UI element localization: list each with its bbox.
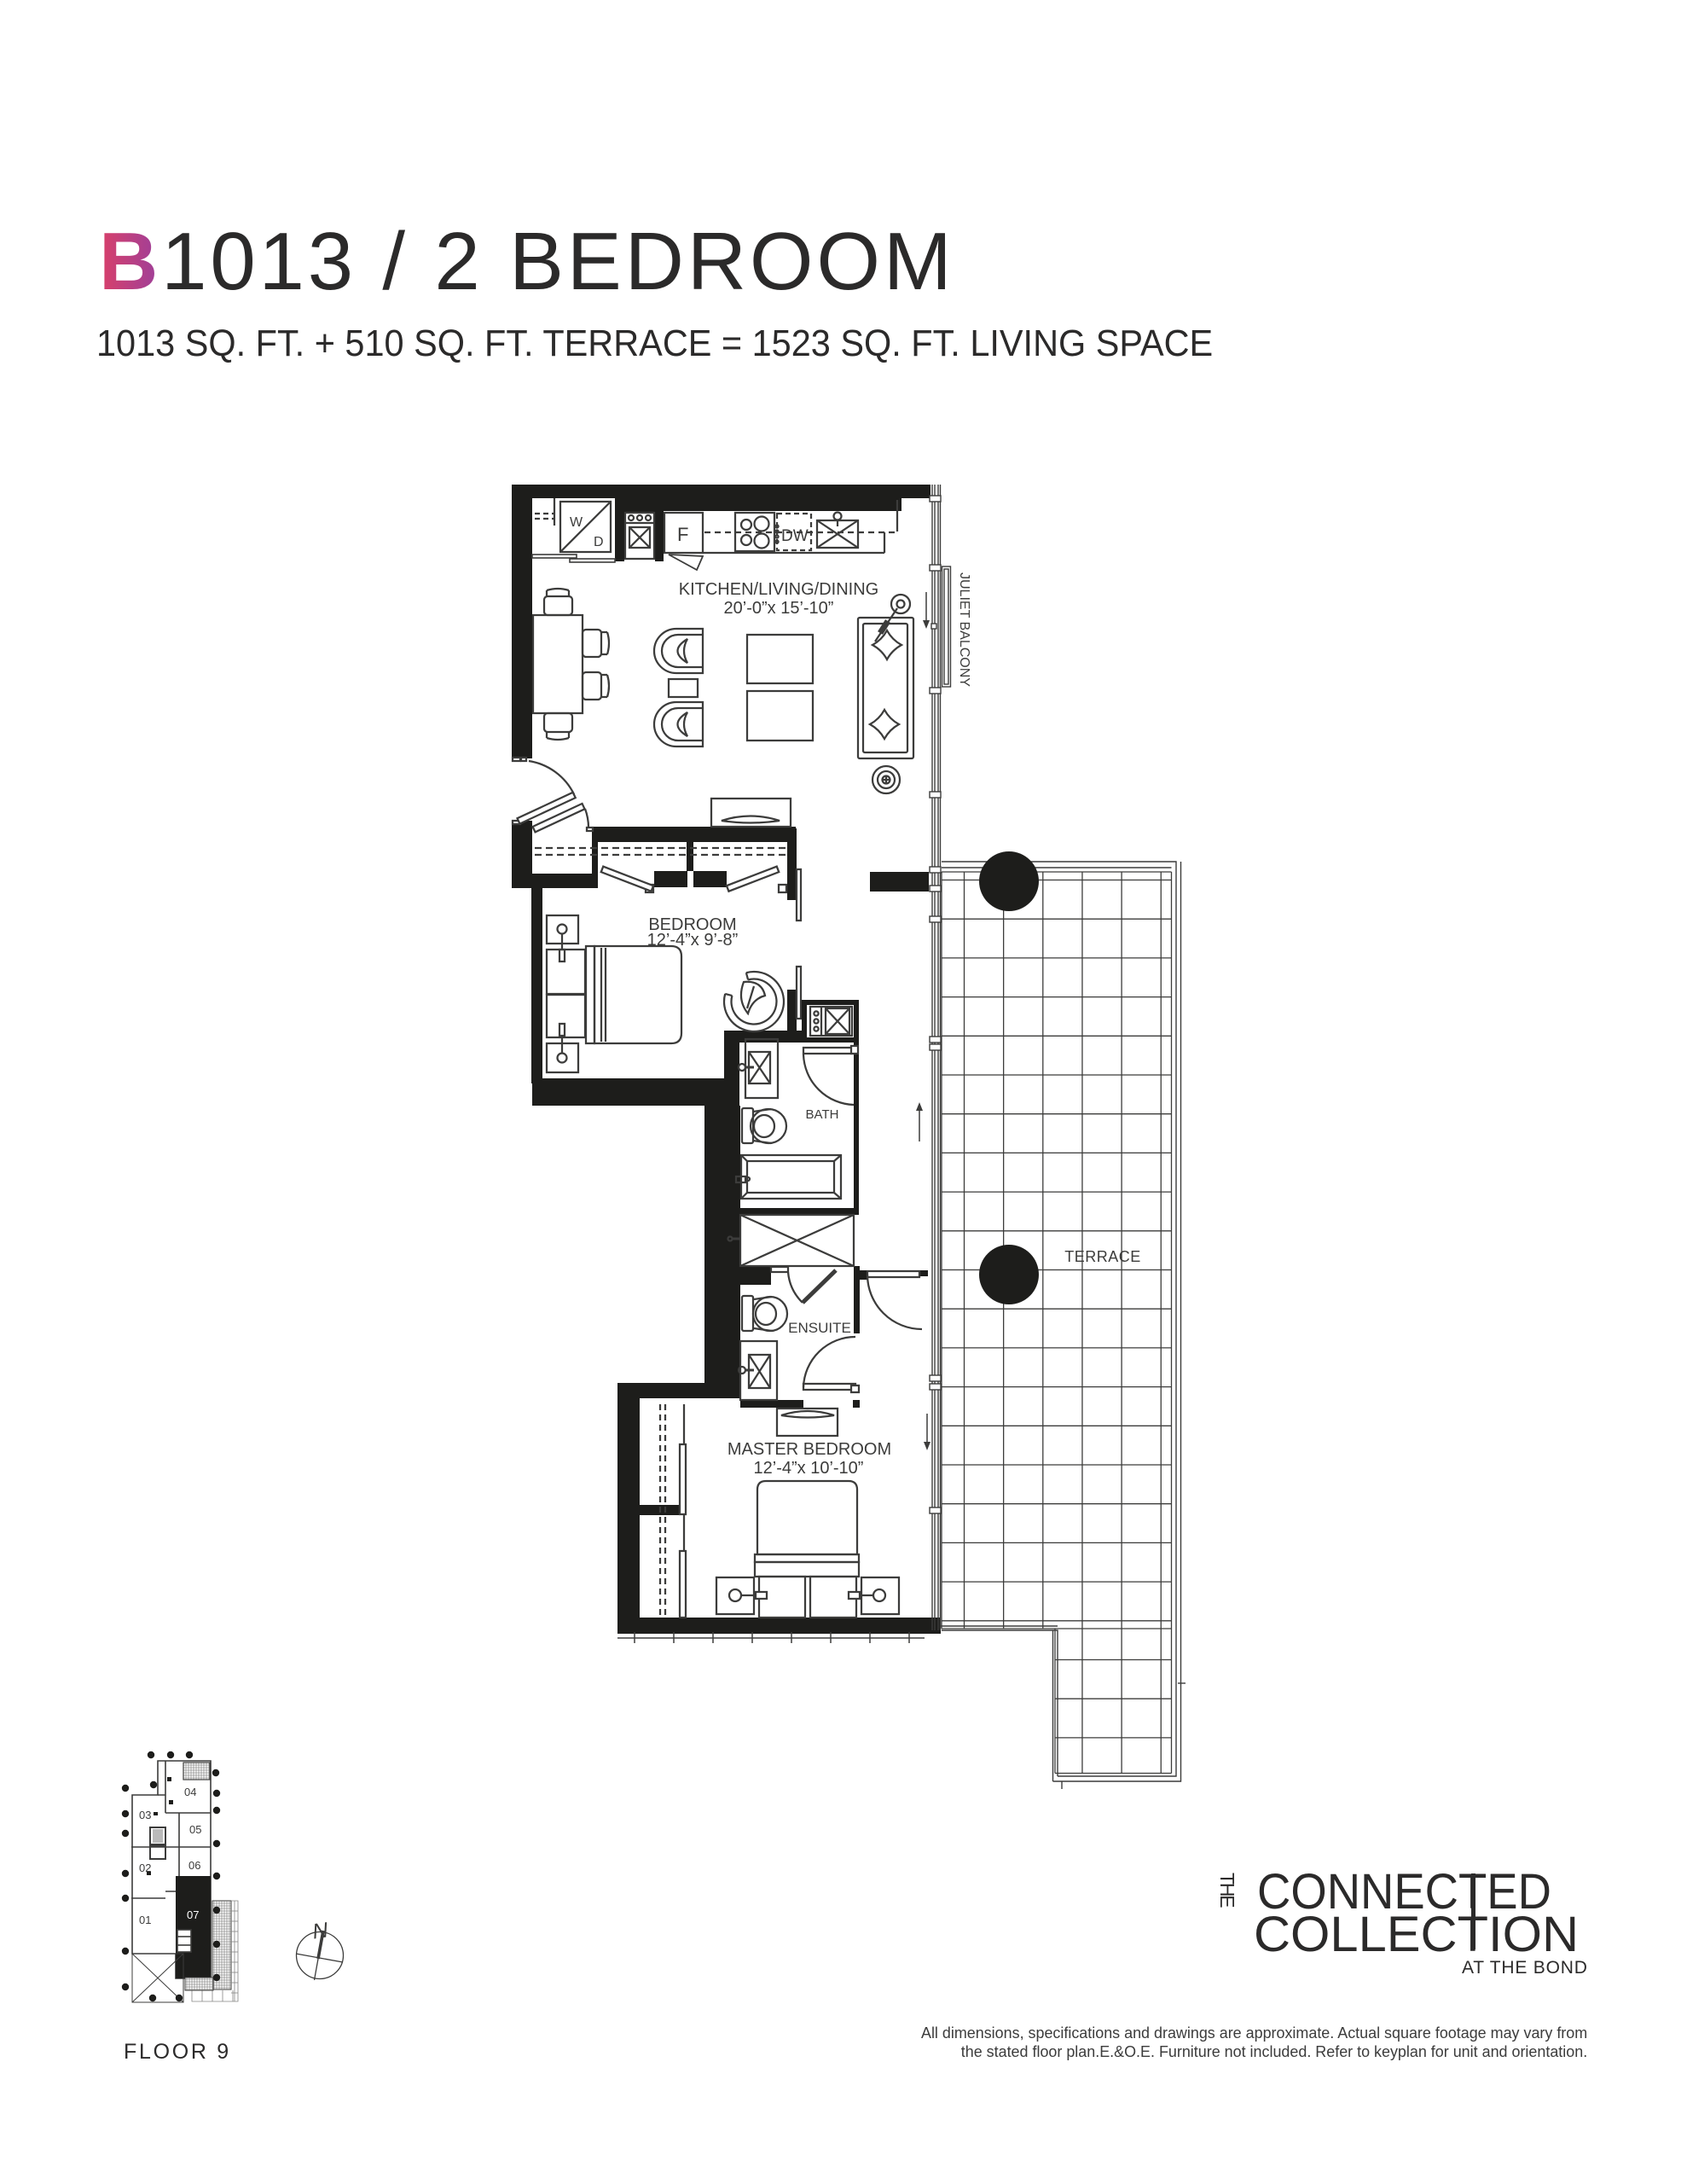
- svg-text:05: 05: [189, 1823, 201, 1836]
- svg-text:D: D: [594, 535, 604, 549]
- svg-text:07: 07: [187, 1908, 199, 1921]
- svg-text:TERRACE: TERRACE: [1064, 1248, 1141, 1265]
- svg-text:04: 04: [184, 1786, 196, 1798]
- svg-text:03: 03: [139, 1809, 151, 1821]
- svg-text:KITCHEN/LIVING/DINING: KITCHEN/LIVING/DINING: [679, 580, 878, 599]
- svg-text:W: W: [570, 515, 583, 530]
- svg-text:JULIET BALCONY: JULIET BALCONY: [957, 572, 971, 687]
- svg-text:BATH: BATH: [806, 1107, 839, 1122]
- svg-text:ENSUITE: ENSUITE: [788, 1320, 851, 1336]
- svg-text:01: 01: [139, 1914, 151, 1926]
- svg-text:F: F: [677, 524, 688, 545]
- svg-text:06: 06: [188, 1859, 200, 1872]
- svg-text:12’-4”x 10’-10”: 12’-4”x 10’-10”: [754, 1459, 864, 1478]
- svg-text:20’-0”x 15’-10”: 20’-0”x 15’-10”: [724, 599, 834, 618]
- svg-text:DW: DW: [781, 527, 809, 545]
- svg-text:N: N: [311, 1918, 331, 1943]
- svg-text:MASTER BEDROOM: MASTER BEDROOM: [728, 1440, 891, 1459]
